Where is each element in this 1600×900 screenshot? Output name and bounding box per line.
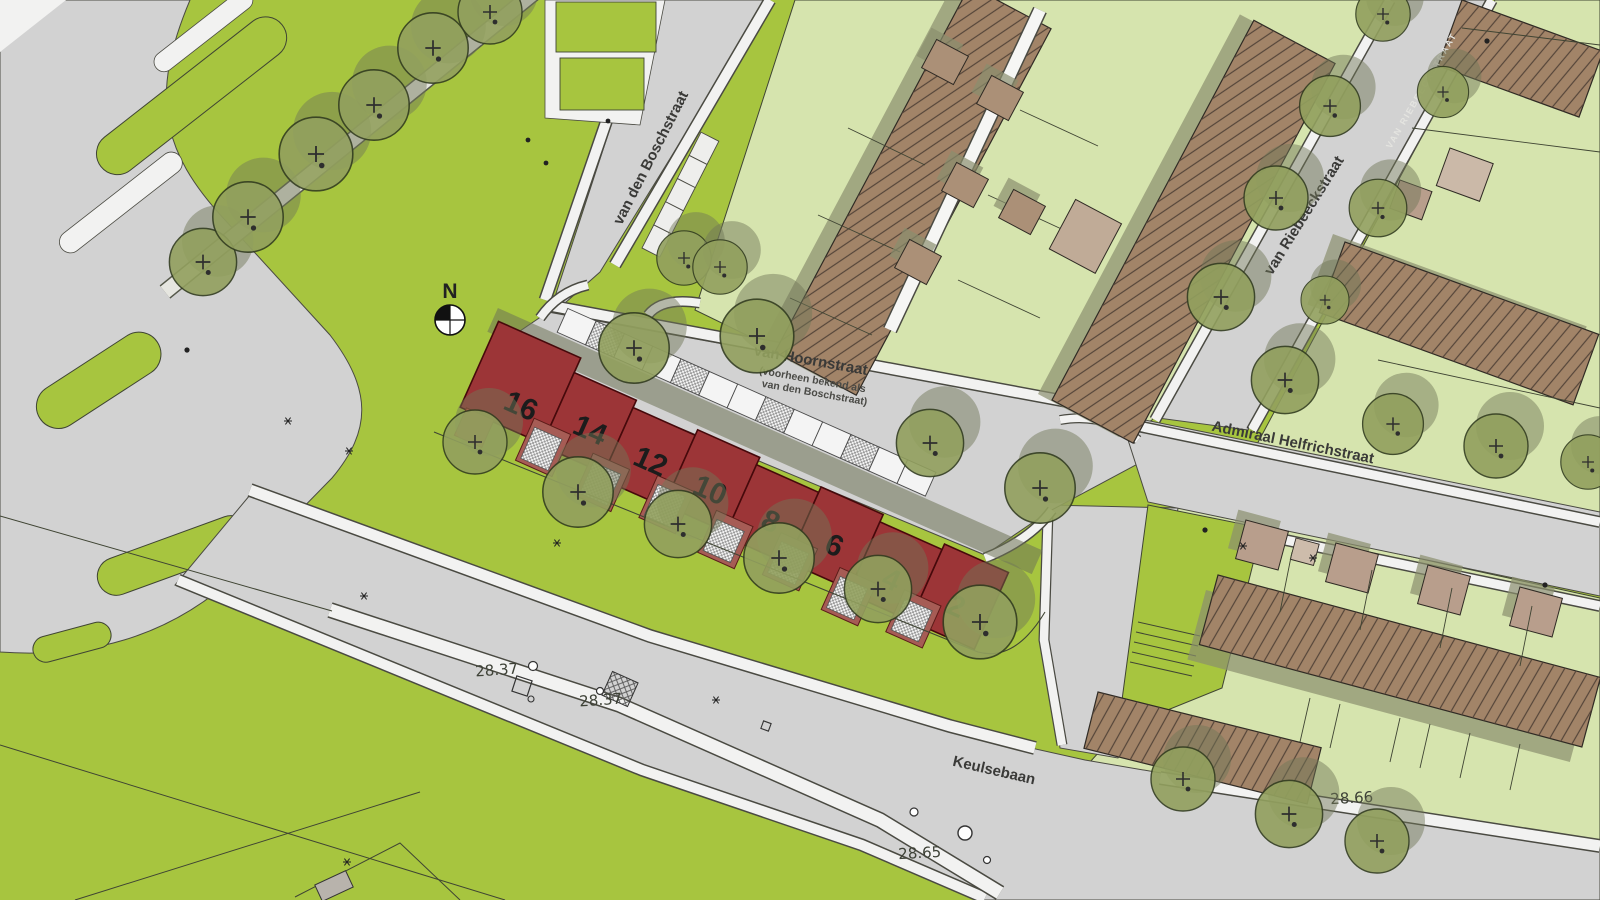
elevation-mark-1: 28.37 <box>475 660 519 681</box>
elevation-mark-3: 28.65 <box>898 843 942 863</box>
north-label: N <box>442 280 457 303</box>
site-plan-page: 16 14 12 10 8 6 4 2 <box>0 0 1600 900</box>
site-plan-map: 16 14 12 10 8 6 4 2 <box>0 0 1600 900</box>
elevation-mark-2: 28.37 <box>579 690 623 711</box>
